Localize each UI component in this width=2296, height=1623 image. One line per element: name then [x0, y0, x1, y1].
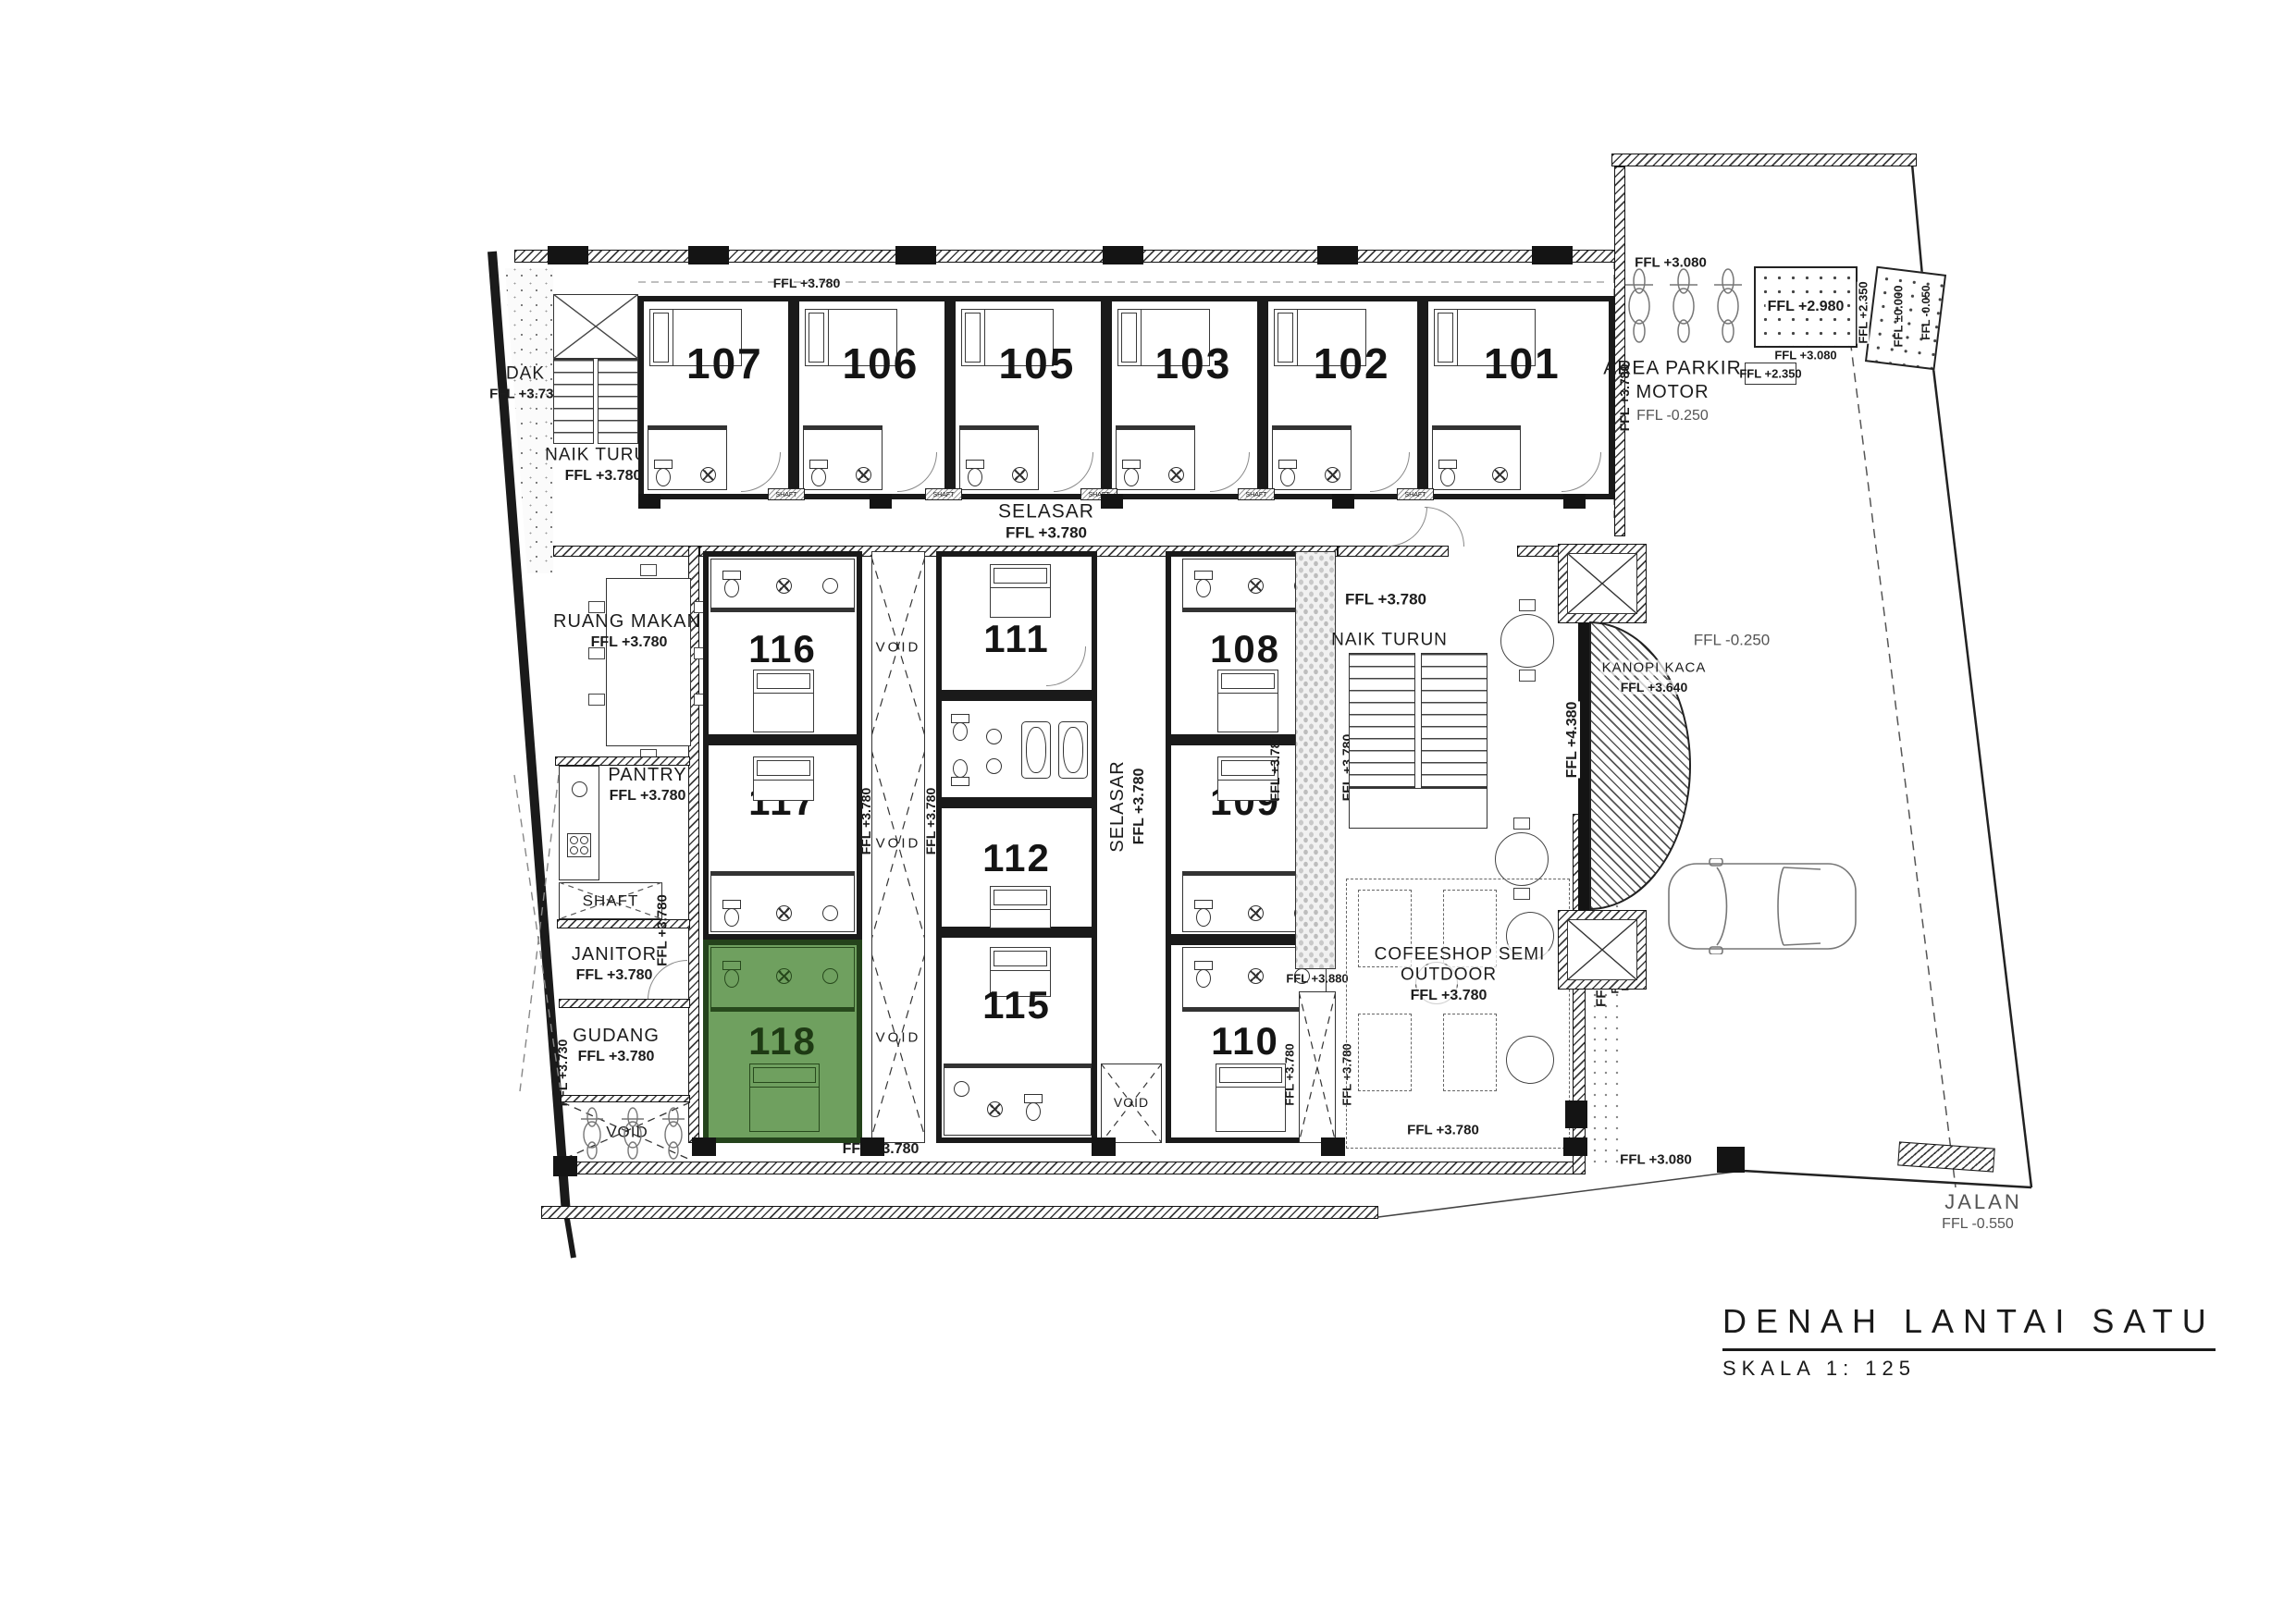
left-zone-level-v: FFL +3.780 [656, 894, 670, 966]
shaft-label: SHAFT [583, 893, 639, 909]
stairs-right-flight-icon [1349, 653, 1415, 788]
stairs-left-flight-icon [598, 359, 638, 444]
bathroom [710, 947, 855, 1012]
column [860, 1137, 884, 1156]
bottom-level-2: FFL +3.780 [1407, 1124, 1479, 1137]
burner-icon [570, 836, 578, 844]
jalan-label: JALAN [1944, 1192, 2021, 1212]
door-arc-icon [1046, 646, 1086, 686]
sink-icon [572, 781, 587, 797]
pantry-level: FFL +3.780 [610, 789, 686, 804]
floor-plan-canvas: DAK FFL +3.730 NAIK TURUN FFL +3.780 107… [0, 0, 2296, 1623]
shaft-box: SHAFT [1397, 488, 1434, 500]
toilet-icon [1194, 961, 1213, 989]
dining-table-icon [606, 578, 691, 746]
round-chair-icon [1506, 1036, 1554, 1084]
column [1103, 246, 1143, 264]
shaft-box: SHAFT [768, 488, 805, 500]
shower-icon [776, 968, 792, 984]
stairs-right-flight-icon [1421, 653, 1487, 788]
pantry-counter [559, 766, 599, 880]
room-107-number: 107 [686, 342, 763, 385]
room-101-number: 101 [1484, 342, 1561, 385]
burner-icon [580, 836, 588, 844]
room-106: 106 [794, 296, 950, 499]
room-105-number: 105 [999, 342, 1076, 385]
toilet-icon [951, 714, 969, 742]
chair-icon [1519, 599, 1536, 611]
column [895, 246, 936, 264]
wall [1338, 546, 1449, 557]
column [548, 246, 588, 264]
bed-icon [753, 756, 814, 801]
column [638, 494, 660, 509]
janitor-label: JANITOR [572, 945, 657, 964]
room-111-number: 111 [983, 620, 1049, 658]
shower-icon [1248, 578, 1264, 594]
column [1321, 1137, 1345, 1156]
coffeeshop-label-2: OUTDOOR [1398, 965, 1500, 985]
shaft-box: SHAFT [925, 488, 962, 500]
parkir-top-level: FFL +3.080 [1635, 256, 1707, 270]
chair-icon [1519, 670, 1536, 682]
bathtub-icon [1058, 721, 1088, 779]
naik-turun-right-label: NAIK TURUN [1331, 632, 1448, 649]
selasar-top-label: SELASAR [998, 502, 1094, 522]
bottom-boundary-level: FFL +3.080 [1620, 1153, 1692, 1167]
room-106-number: 106 [843, 342, 920, 385]
bathroom [710, 871, 855, 932]
coffee-table-icon [1443, 1014, 1497, 1091]
toilet-icon [1194, 900, 1213, 928]
ramp-level-v: FFL +2.350 [1858, 281, 1870, 343]
void-label: VOID [876, 837, 921, 851]
drawing-title: DENAH LANTAI SATU [1722, 1302, 2216, 1351]
toilet-icon [809, 460, 828, 487]
shower-icon [1248, 905, 1264, 921]
toilet-icon [722, 900, 741, 928]
bathroom [1272, 425, 1352, 490]
gudang-label: GUDANG [573, 1027, 660, 1045]
sink-icon [954, 1081, 969, 1097]
sink-icon [986, 729, 1002, 744]
room-103-number: 103 [1155, 342, 1232, 385]
room-116-number: 116 [748, 630, 817, 669]
bathroom [648, 425, 727, 490]
room-101: 101 [1423, 296, 1614, 499]
toilet-icon [1438, 460, 1457, 487]
motor-label: MOTOR [1636, 383, 1709, 401]
ruang-makan-label: RUANG MAKAN [553, 612, 701, 631]
wall [561, 1095, 690, 1102]
ramp-level: FFL +2.980 [1766, 300, 1846, 314]
outside-level: FFL -0.250 [1694, 633, 1771, 648]
sink-icon [822, 578, 838, 594]
room-117: 117 [703, 740, 862, 940]
wall [553, 546, 699, 557]
toilet-icon [966, 460, 984, 487]
area-parkir-label: AREA PARKIR [1603, 359, 1742, 378]
bed-icon [1216, 1064, 1286, 1132]
selasar-mid-label: SELASAR [1108, 760, 1127, 852]
column [553, 1156, 577, 1176]
ruang-makan-level: FFL +3.780 [591, 635, 668, 650]
ramp-level-v: FFL -0.050 [1920, 285, 1932, 339]
room-107: 107 [638, 296, 794, 499]
void-x-icon [1299, 991, 1336, 1143]
stair-landing [1349, 788, 1487, 829]
janitor-level: FFL +3.780 [576, 968, 653, 983]
column [692, 1137, 716, 1156]
pebble-walkway [1295, 551, 1336, 969]
bed-icon [753, 670, 814, 732]
room-110-number: 110 [1211, 1022, 1279, 1061]
chair-icon [588, 694, 605, 706]
coffeeshop-label-1: COFEESHOP SEMI [1372, 945, 1549, 965]
column [1092, 1137, 1116, 1156]
toilet-icon [722, 961, 741, 989]
coffeeshop-level: FFL +3.780 [1408, 988, 1490, 1004]
door-arc-icon [897, 452, 937, 492]
void-level-v: FFL +3.780 [859, 788, 872, 855]
stair-landing-level: FFL +3.780 [1345, 592, 1426, 608]
shower-icon [987, 1101, 1003, 1117]
shaft-box: SHAFT [1238, 488, 1275, 500]
naik-turun-left-level: FFL +3.780 [565, 469, 642, 484]
door-arc-icon [1370, 452, 1410, 492]
canopy-level-v: FFL +4.380 [1565, 702, 1580, 779]
shower-icon [776, 905, 792, 921]
drawing-scale: SKALA 1: 125 [1722, 1357, 2216, 1381]
bed-icon [990, 886, 1051, 928]
dak-label: DAK [506, 365, 545, 383]
column [1532, 246, 1573, 264]
door-arc-icon [1562, 452, 1601, 492]
selasar-mid-level: FFL +3.780 [1132, 768, 1147, 845]
pebble-level: FFL +3.880 [1286, 973, 1348, 985]
burner-icon [570, 846, 578, 855]
shower-icon [1168, 467, 1184, 483]
shower-icon [1325, 467, 1340, 483]
top-strip-level: FFL +3.780 [773, 277, 841, 289]
bed-icon [1217, 670, 1278, 732]
column [870, 494, 892, 509]
room-111: 111 [936, 551, 1097, 695]
coffee-table-icon [1358, 1014, 1412, 1091]
toilet-icon [1122, 460, 1141, 487]
terrace-bottom-wall [541, 1206, 1378, 1219]
room-115: 115 [936, 932, 1097, 1143]
kanopi-label: KANOPI KACA [1600, 660, 1709, 676]
room-103: 103 [1106, 296, 1263, 499]
shower-icon [1248, 968, 1264, 984]
bathroom [959, 425, 1039, 490]
toilet-icon [951, 758, 969, 786]
column [1101, 494, 1123, 509]
parking-top-wall [1611, 154, 1917, 166]
bathroom [710, 559, 855, 612]
ramp-step-level: FFL +2.350 [1739, 368, 1801, 380]
motorcycle-icons [1621, 266, 1750, 348]
jalan-level: FFL -0.550 [1942, 1217, 2014, 1232]
bathroom [944, 1064, 1092, 1136]
door-arc-icon [741, 452, 781, 492]
building-top-wall [514, 250, 1621, 263]
stairs-left-flight-icon [553, 359, 594, 444]
car-icon [1665, 858, 1859, 954]
toilet-icon [654, 460, 673, 487]
bathroom [803, 425, 883, 490]
ramp-level-2: FFL +3.080 [1774, 350, 1836, 362]
shared-bathroom-111-112 [936, 695, 1097, 803]
room-105: 105 [950, 296, 1106, 499]
gudang-level: FFL +3.780 [578, 1050, 655, 1064]
lift-x-icon [1567, 553, 1637, 614]
stair-winder-lines [553, 294, 638, 359]
void-level-v: FFL +3.780 [924, 788, 937, 855]
toilet-icon [722, 571, 741, 598]
chair-icon [1513, 818, 1530, 830]
stove-icon [567, 833, 591, 857]
toilet-icon [1278, 460, 1297, 487]
shower-icon [1492, 467, 1508, 483]
building-right-wall [1614, 166, 1625, 536]
shower-icon [856, 467, 871, 483]
room-108-number: 108 [1210, 630, 1280, 669]
bathroom [1432, 425, 1521, 490]
parkir-level: FFL -0.250 [1636, 409, 1709, 424]
chair-icon [640, 564, 657, 576]
sink-icon [986, 758, 1002, 774]
void-label: VOID [1114, 1096, 1149, 1109]
room-102-number: 102 [1314, 342, 1390, 385]
toilet-icon [1024, 1094, 1043, 1122]
sink-icon [822, 905, 838, 921]
selasar-top-level: FFL +3.780 [1006, 525, 1087, 541]
door-arc-icon [1054, 452, 1093, 492]
building-bottom-wall [553, 1162, 1586, 1174]
column [688, 246, 729, 264]
walkway-level-v: FFL +3.780 [1268, 734, 1281, 802]
room-112: 112 [936, 803, 1097, 932]
door-arc-icon [1210, 452, 1250, 492]
title-block: DENAH LANTAI SATU SKALA 1: 125 [1722, 1302, 2216, 1381]
void-label: VOID [876, 641, 921, 655]
bathtub-icon [1021, 721, 1051, 779]
room-115-number: 115 [982, 986, 1051, 1025]
room-116: 116 [703, 551, 862, 740]
ramp-pad-2 [1865, 266, 1946, 370]
room-112-number: 112 [982, 839, 1051, 878]
pantry-label: PANTRY [608, 766, 686, 784]
void-level-v: FFL +3.780 [1284, 1043, 1296, 1105]
column [1563, 1137, 1587, 1156]
column [1563, 494, 1586, 509]
round-table-icon [1500, 614, 1554, 668]
lift-x-icon [1567, 919, 1637, 980]
sink-icon [822, 968, 838, 984]
void-label: VOID [876, 1031, 921, 1045]
bed-icon [990, 564, 1051, 618]
ramp-level-v: FFL ±0.000 [1893, 286, 1905, 348]
bed-icon [749, 1064, 820, 1132]
shower-icon [776, 578, 792, 594]
dak-level: FFL +3.730 [489, 387, 562, 401]
wall [559, 999, 690, 1008]
room-102: 102 [1263, 296, 1423, 499]
column [1317, 246, 1358, 264]
shower-icon [1012, 467, 1028, 483]
bathroom [1116, 425, 1195, 490]
shower-icon [700, 467, 716, 483]
boundary-corner-block [1717, 1147, 1745, 1173]
kanopi-level: FFL +3.640 [1619, 680, 1690, 695]
column [1332, 494, 1354, 509]
toilet-icon [1194, 571, 1213, 598]
room-118-number: 118 [748, 1022, 817, 1061]
motorcycle-icons [575, 1106, 696, 1162]
room-118-highlighted: 118 [703, 940, 862, 1143]
burner-icon [580, 846, 588, 855]
